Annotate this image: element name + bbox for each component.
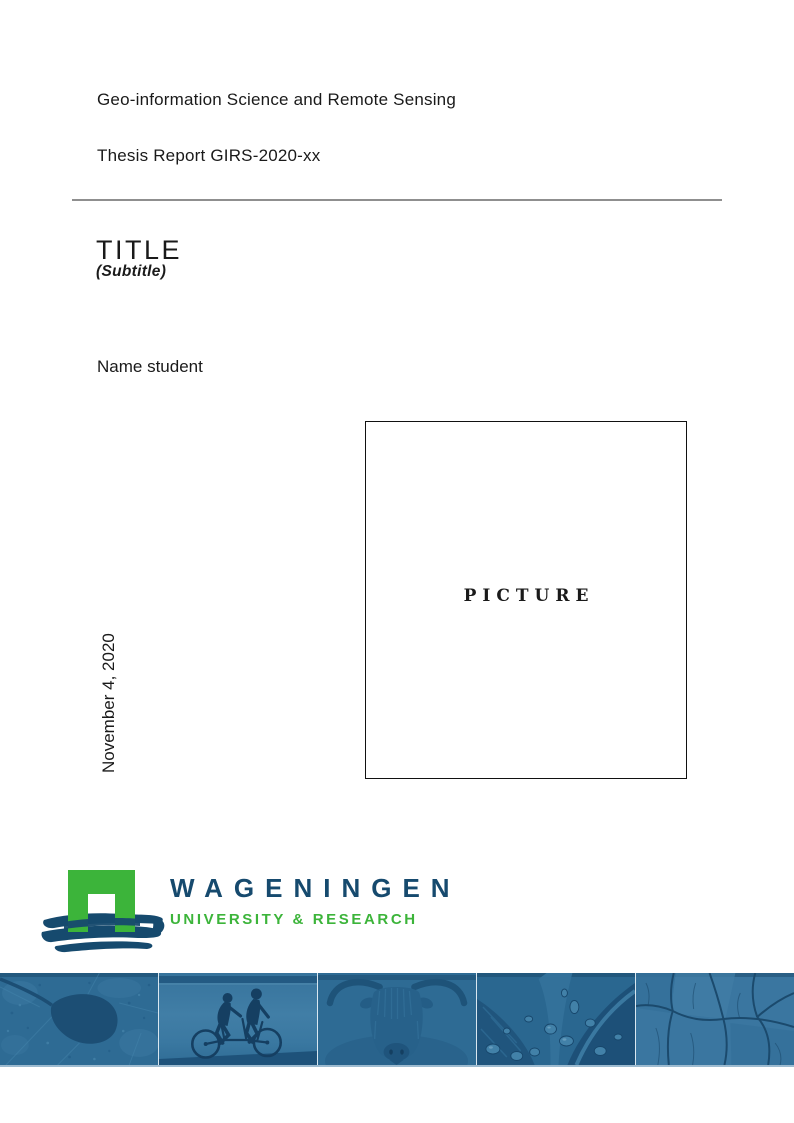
banner-tile-highland-cow <box>317 973 476 1065</box>
logo-tagline: UNIVERSITY & RESEARCH <box>170 911 418 928</box>
banner-tile-leaf-droplets <box>476 973 635 1065</box>
thesis-subtitle: (Subtitle) <box>96 263 166 281</box>
wur-logo: WAGENINGEN UNIVERSITY & RESEARCH <box>40 862 470 962</box>
tandem-cyclists-photo <box>159 973 317 1065</box>
leaf-droplets-photo <box>477 973 635 1065</box>
banner-tile-aerial-map <box>0 973 158 1065</box>
highland-cow-photo <box>318 973 476 1065</box>
report-id: Thesis Report GIRS-2020-xx <box>97 146 320 166</box>
thesis-title: TITLE <box>96 235 182 266</box>
banner-tile-tandem-cyclists <box>158 973 317 1065</box>
logo-wordmark: WAGENINGEN <box>170 873 461 904</box>
divider-rule <box>72 199 722 201</box>
photo-banner <box>0 973 794 1067</box>
cracked-earth-photo <box>636 973 794 1065</box>
wur-gate-icon <box>40 862 168 962</box>
date-rotated: November 4, 2020 <box>92 597 126 773</box>
aerial-map-photo <box>0 973 158 1065</box>
program-name: Geo-information Science and Remote Sensi… <box>97 90 456 110</box>
date-text: November 4, 2020 <box>92 597 126 773</box>
picture-placeholder-label: PICTURE <box>458 586 595 606</box>
banner-tile-cracked-earth <box>635 973 794 1065</box>
author-name: Name student <box>97 357 203 377</box>
thesis-cover-page: Geo-information Science and Remote Sensi… <box>0 0 794 1123</box>
picture-placeholder-box: PICTURE <box>365 421 687 779</box>
